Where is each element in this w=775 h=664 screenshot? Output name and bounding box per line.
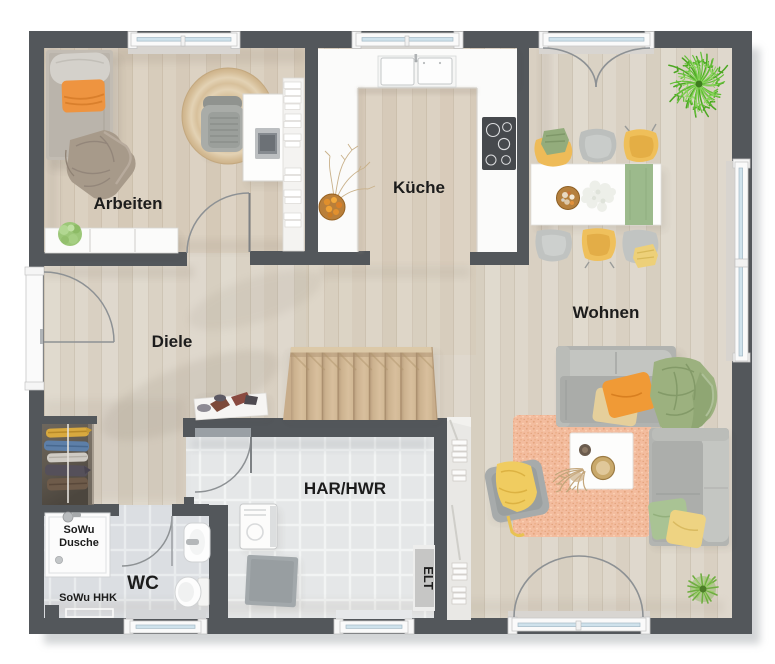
svg-text:Küche: Küche [393, 178, 445, 197]
svg-text:Diele: Diele [152, 332, 193, 351]
svg-text:Dusche: Dusche [59, 537, 99, 549]
svg-text:Arbeiten: Arbeiten [94, 194, 163, 213]
svg-text:Wohnen: Wohnen [573, 303, 640, 322]
svg-text:ELT: ELT [421, 566, 436, 590]
svg-text:WC: WC [127, 573, 159, 594]
svg-text:HAR/HWR: HAR/HWR [304, 479, 386, 498]
svg-text:SoWu: SoWu [64, 524, 95, 536]
svg-text:SoWu HHK: SoWu HHK [59, 592, 117, 604]
